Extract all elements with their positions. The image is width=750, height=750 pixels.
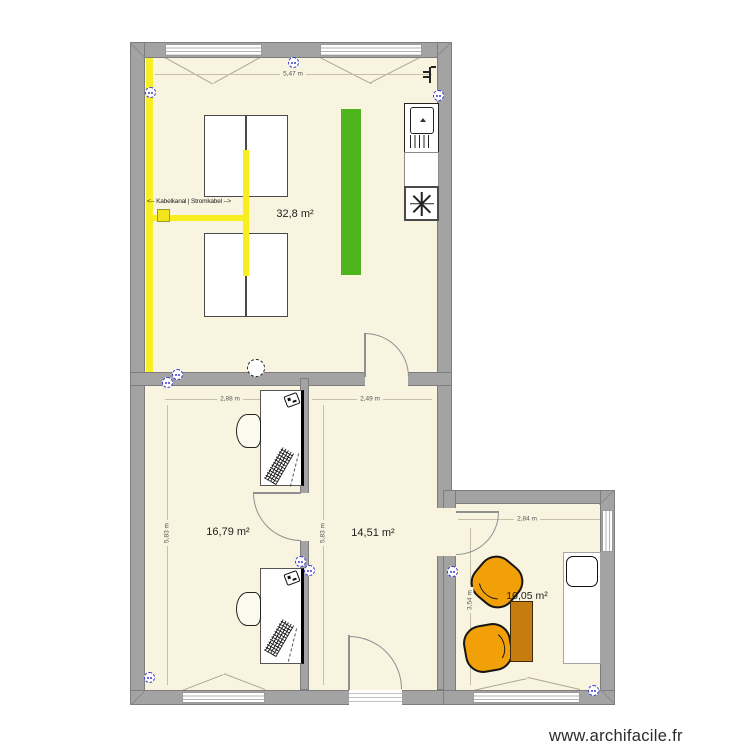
cable-label: <-- Kabelkanal | Stromkabel --> (147, 198, 231, 205)
door-opening (300, 493, 309, 541)
power-outlet-icon[interactable] (288, 57, 299, 68)
room-area-label: 10,05 m² (506, 590, 547, 602)
dimension-label: 2,84 m (514, 516, 540, 523)
pillow (566, 556, 598, 587)
side-table[interactable] (510, 601, 533, 662)
light-switch-icon (423, 71, 429, 73)
power-outlet-icon[interactable] (172, 369, 183, 380)
window[interactable] (165, 44, 262, 56)
cable-junction-icon[interactable] (157, 209, 170, 222)
dimension-label: 3,54 m (467, 587, 474, 613)
wall-bottom (130, 690, 452, 705)
kitchen-counter[interactable] (404, 152, 439, 187)
door-opening (349, 690, 402, 705)
room-area-label: 16,79 m² (206, 526, 249, 538)
light-switch-icon[interactable] (429, 67, 431, 83)
office-chair[interactable] (236, 414, 261, 448)
oven-grill (410, 135, 432, 148)
room-area-label: 32,8 m² (276, 208, 313, 220)
dimension-label: 5,47 m (280, 71, 306, 78)
dimension-label: 2,49 m (357, 396, 383, 403)
freezer-icon[interactable] (404, 186, 439, 221)
window[interactable] (320, 44, 422, 56)
door-opening (437, 508, 456, 556)
ceiling-lamp-icon[interactable] (247, 359, 265, 377)
armchair-seat-line (477, 629, 508, 666)
window[interactable] (473, 692, 580, 703)
oven-panel (410, 107, 434, 134)
power-outlet-icon[interactable] (304, 565, 315, 576)
office-chair[interactable] (236, 592, 261, 626)
floor-plan-canvas: <-- Kabelkanal | Stromkabel --> (0, 0, 750, 750)
stove-icon[interactable] (404, 103, 439, 153)
power-outlet-icon[interactable] (295, 556, 306, 567)
power-outlet-icon[interactable] (447, 566, 458, 577)
window[interactable] (602, 510, 613, 552)
dimension-label: 2,88 m (217, 396, 243, 403)
power-cable-vertical[interactable] (243, 150, 249, 276)
light-switch-icon (423, 76, 429, 78)
power-outlet-icon[interactable] (145, 87, 156, 98)
power-outlet-icon[interactable] (433, 90, 444, 101)
room-area-label: 14,51 m² (351, 527, 394, 539)
watermark: www.archifacile.fr (549, 727, 683, 746)
dimension-label: 5,83 m (320, 520, 327, 546)
light-switch-icon (431, 66, 436, 68)
window[interactable] (182, 692, 265, 703)
power-outlet-icon[interactable] (588, 685, 599, 696)
power-outlet-icon[interactable] (162, 377, 173, 388)
power-outlet-icon[interactable] (144, 672, 155, 683)
green-strip[interactable] (341, 109, 361, 275)
dimension-label: 5,83 m (164, 520, 171, 546)
wall-rightroom-top (443, 490, 615, 504)
